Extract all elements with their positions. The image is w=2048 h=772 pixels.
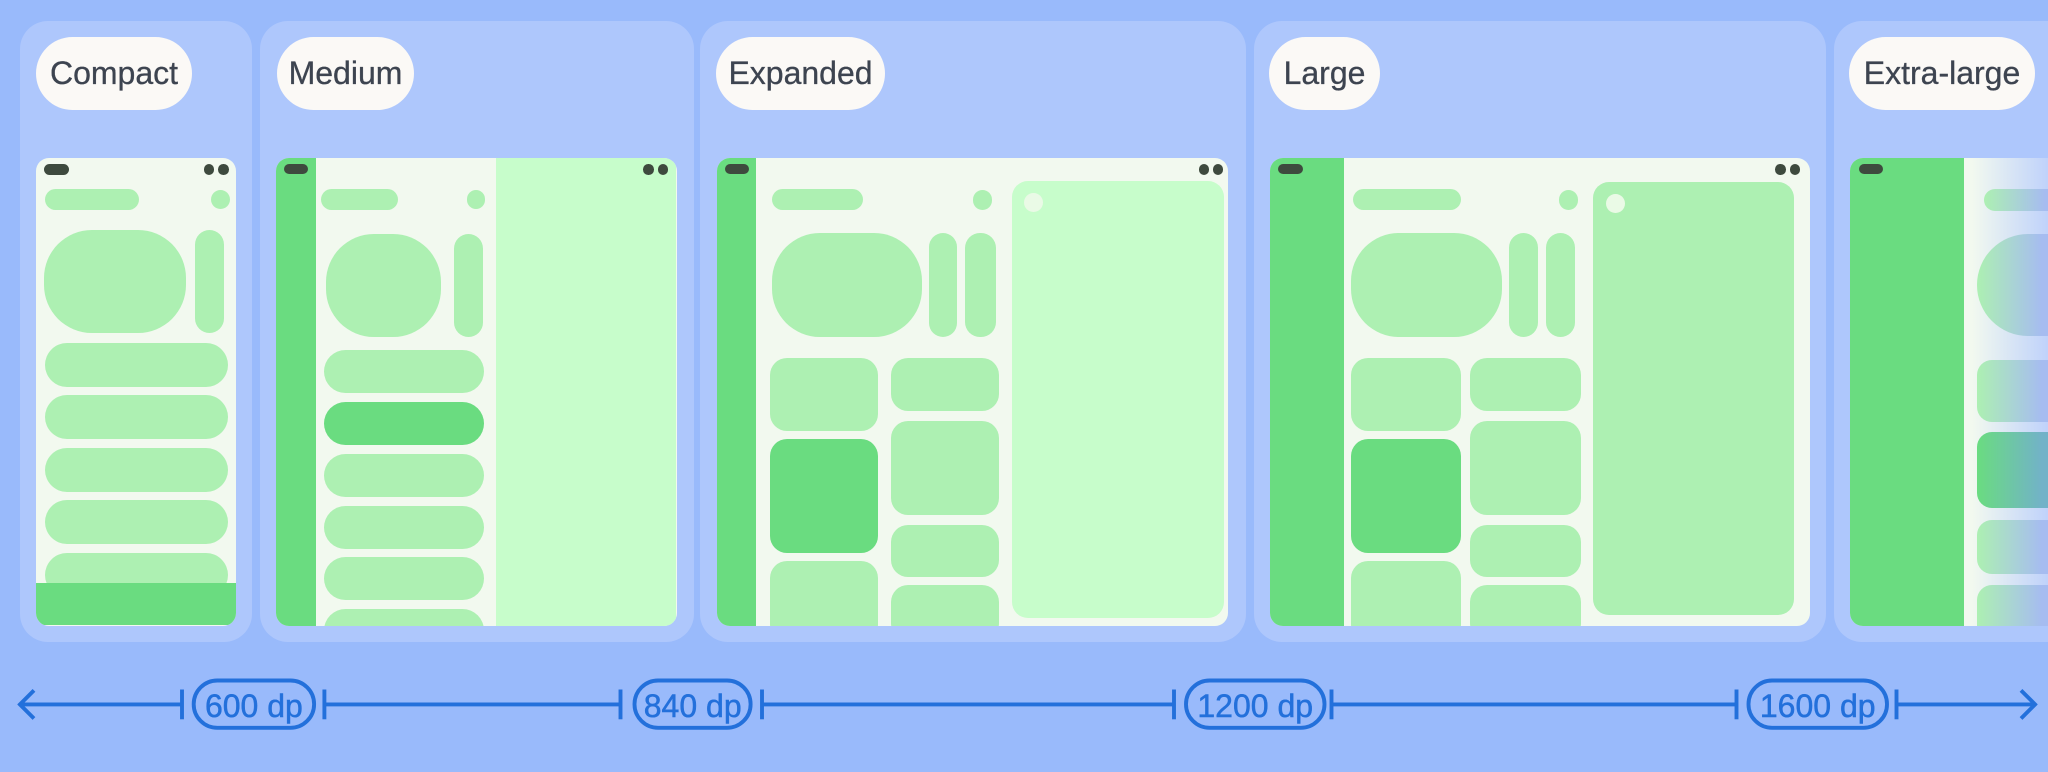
svg-text:1200 dp: 1200 dp xyxy=(1197,688,1313,724)
svg-text:840 dp: 840 dp xyxy=(644,688,742,724)
svg-text:1600 dp: 1600 dp xyxy=(1760,688,1876,724)
svg-text:600 dp: 600 dp xyxy=(205,688,303,724)
